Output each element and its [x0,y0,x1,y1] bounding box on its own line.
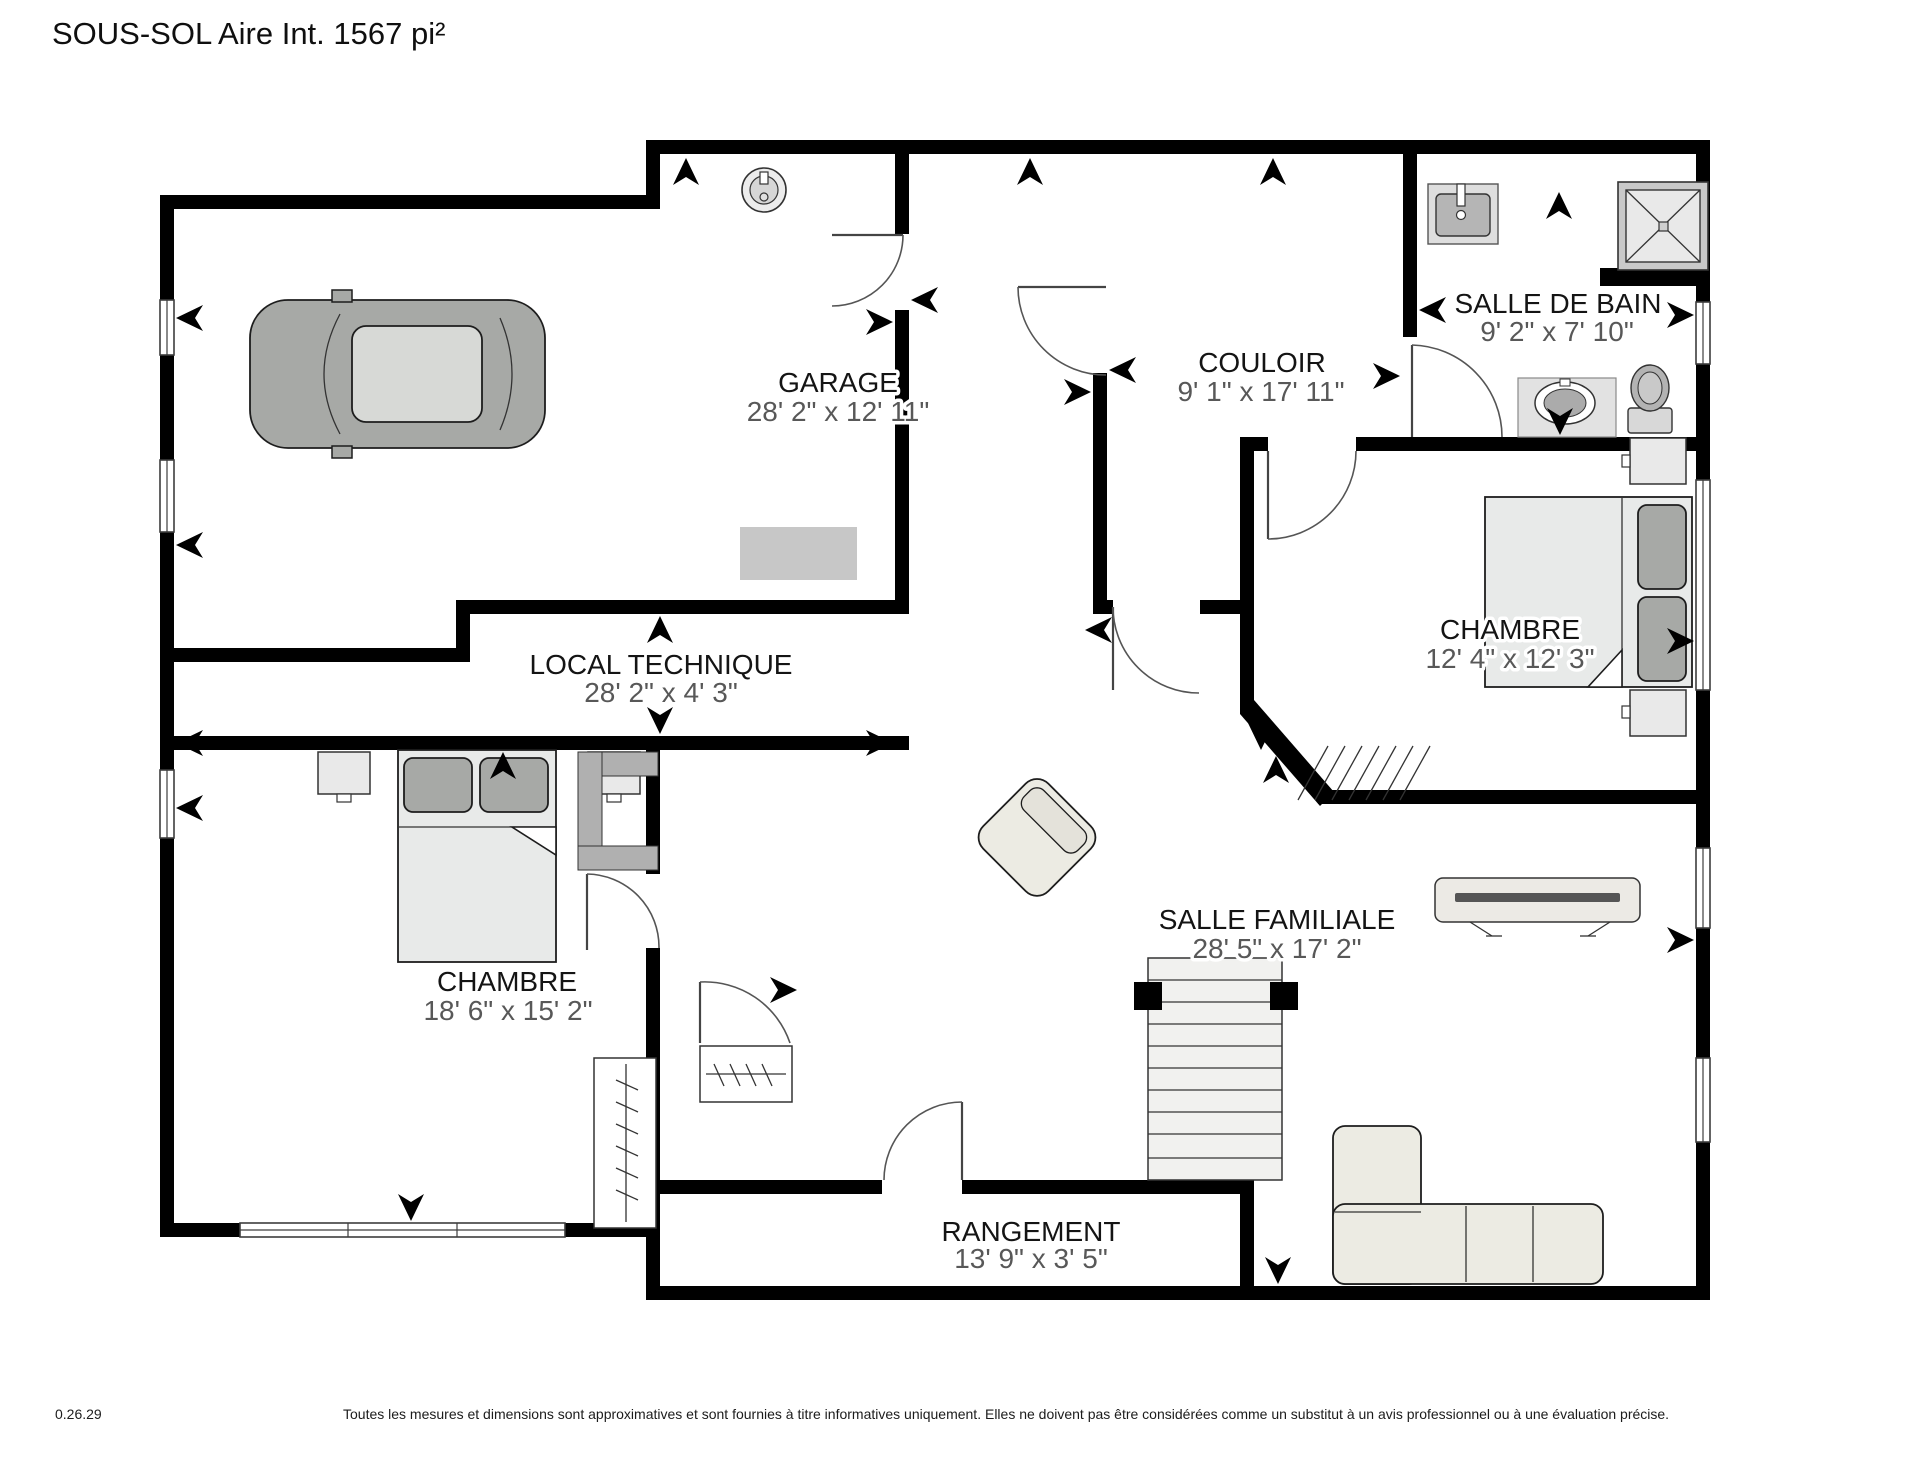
floor-plan-page: SOUS-SOL Aire Int. 1567 pi² [0,0,1920,1483]
door-arc [1018,287,1106,375]
nightstand [1622,438,1686,484]
window [1696,1058,1710,1142]
direction-arrow-icon [1373,363,1400,389]
armchair [972,772,1102,902]
direction-arrow-icon [1419,297,1446,323]
room-dims-salle-familiale: 28' 5" x 17' 2" [1192,933,1361,964]
room-label-salle-de-bain: SALLE DE BAIN [1455,288,1662,319]
direction-arrow-icon [1085,617,1112,643]
room-dims-garage: 28' 2" x 12' 11" [747,396,930,427]
car-icon [250,290,545,458]
direction-arrow-icon [1260,158,1286,185]
nightstand [318,752,370,802]
disclaimer-text: Toutes les mesures et dimensions sont ap… [343,1406,1883,1422]
room-label-chambre-droite: CHAMBRE [1440,614,1580,645]
closet-rod [594,1058,656,1228]
room-dims-chambre-gauche: 18' 6" x 15' 2" [423,995,592,1026]
direction-arrow-icon [398,1194,424,1221]
direction-arrow-icon [1667,927,1694,953]
room-label-chambre-gauche: CHAMBRE [437,966,577,997]
direction-arrow-icon [647,707,673,734]
direction-arrow-icon [1667,302,1694,328]
direction-arrow-icon [1109,357,1136,383]
direction-arrow-icon [1064,379,1091,405]
door-arc [700,982,790,1043]
direction-arrow-icon [1546,192,1572,219]
direction-arrow-icon [770,977,797,1003]
door-arc [884,1102,962,1180]
window [160,300,174,355]
room-dims-couloir: 9' 1" x 17' 11" [1177,376,1344,407]
direction-arrow-icon [176,532,203,558]
nightstand [1622,690,1686,736]
closet-rod [700,1046,792,1102]
equipment-pad [740,527,857,580]
toilet-icon [1628,365,1672,433]
window [1696,848,1710,928]
tv-console [1435,878,1640,936]
room-dims-chambre-droite: 12' 4" x 12' 3" [1425,643,1594,674]
room-dims-local-technique: 28' 2" x 4' 3" [584,677,738,708]
door-arc [832,235,903,306]
family-room-furniture [700,772,1640,1284]
direction-arrow-icon [176,795,203,821]
sofa [1333,1126,1603,1284]
direction-arrow-icon [866,309,893,335]
sink-icon [1518,378,1616,437]
window [1696,302,1710,364]
window [160,770,174,838]
garage-contents [250,168,857,580]
room-label-couloir: COULOIR [1198,347,1326,378]
vanity-sink-icon [1428,184,1498,244]
floor-plan-drawing: GARAGE 28' 2" x 12' 11" COULOIR 9' 1" x … [0,0,1920,1483]
window [1696,480,1710,690]
shower-icon [1618,182,1708,270]
window [160,460,174,532]
direction-arrow-icon [1017,158,1043,185]
door-arc [587,874,659,950]
stairs [1134,958,1298,1180]
window [240,1223,565,1237]
water-heater-icon [742,168,786,212]
door-arc [1412,345,1502,437]
door-arc [1113,607,1199,693]
direction-arrow-icon [176,305,203,331]
direction-arrow-icon [1265,1257,1291,1284]
room-dims-salle-de-bain: 9' 2" x 7' 10" [1480,316,1634,347]
door-arc [1268,451,1356,539]
room-label-local-technique: LOCAL TECHNIQUE [530,649,793,680]
direction-arrow-icon [647,616,673,643]
room-label-salle-familiale: SALLE FAMILIALE [1159,904,1396,935]
direction-arrow-icon [911,287,938,313]
version-label: 0.26.29 [55,1406,102,1422]
room-label-garage: GARAGE [778,367,898,398]
bed [398,750,556,962]
direction-arrow-icon [673,158,699,185]
room-dims-rangement: 13' 9" x 3' 5" [954,1243,1108,1274]
